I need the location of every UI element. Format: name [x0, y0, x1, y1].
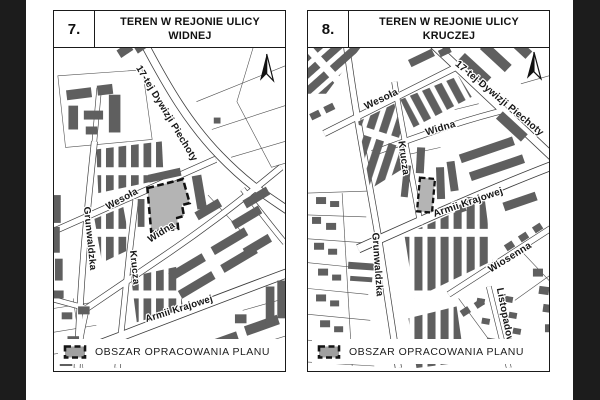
plan-area-kruczej — [417, 178, 435, 213]
panel-number: 7. — [54, 11, 95, 47]
panel-title-line2: KRUCZEJ — [423, 29, 475, 43]
panel-header: 7. TEREN W REJONIE ULICY WIDNEJ — [54, 11, 285, 48]
film-border-right — [573, 0, 600, 400]
panel-kruczej: 8. TEREN W REJONIE ULICY KRUCZEJ — [307, 10, 550, 372]
map-widnej-svg: 17-tej Dywizji Piechoty Wesoła Widna Gru… — [54, 48, 285, 368]
map-kruczej: Wesoła 17-tej Dywizji Piechoty Widna Kru… — [308, 48, 549, 368]
plan-area-swatch-icon — [62, 344, 88, 360]
panel-widnej: 7. TEREN W REJONIE ULICY WIDNEJ — [53, 10, 286, 372]
panel-title-line1: TEREN W REJONIE ULICY — [120, 15, 260, 29]
panel-number: 8. — [308, 11, 349, 47]
legend-label: OBSZAR OPRACOWANIA PLANU — [95, 346, 270, 358]
legend: OBSZAR OPRACOWANIA PLANU — [312, 339, 545, 364]
north-arrow-icon — [527, 52, 541, 79]
panel-title-line2: WIDNEJ — [168, 29, 211, 43]
legend-label: OBSZAR OPRACOWANIA PLANU — [349, 346, 524, 358]
map-widnej: 17-tej Dywizji Piechoty Wesoła Widna Gru… — [54, 48, 285, 368]
film-border-left — [0, 0, 26, 400]
panel-title: TEREN W REJONIE ULICY WIDNEJ — [95, 11, 285, 47]
plan-area-swatch-icon — [316, 344, 342, 360]
map-kruczej-svg: Wesoła 17-tej Dywizji Piechoty Widna Kru… — [308, 48, 549, 368]
panel-title: TEREN W REJONIE ULICY KRUCZEJ — [349, 11, 549, 47]
north-arrow-icon — [260, 54, 273, 81]
legend: OBSZAR OPRACOWANIA PLANU — [58, 339, 281, 364]
panel-header: 8. TEREN W REJONIE ULICY KRUCZEJ — [308, 11, 549, 48]
panel-title-line1: TEREN W REJONIE ULICY — [379, 15, 519, 29]
